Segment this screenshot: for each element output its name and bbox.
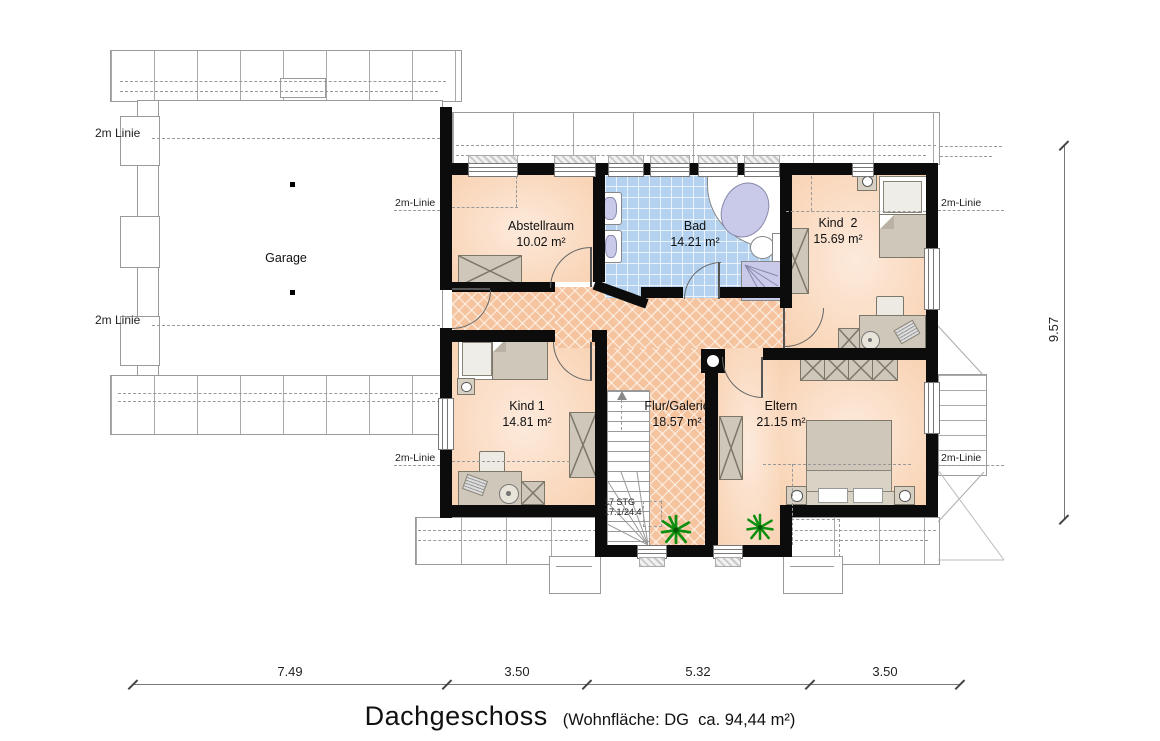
room-label-flur: Flur/Galerie18.57 m² <box>644 398 709 431</box>
plant-icon <box>745 513 775 540</box>
guide-label-house-right-bottom: 2m-Linie <box>941 452 981 464</box>
roof-dashed-line <box>418 540 588 541</box>
room-name: Eltern <box>765 399 798 413</box>
guide-label-garage-bottom: 2m Linie <box>95 313 140 327</box>
roof-dashed-line <box>118 393 448 394</box>
2m-line <box>938 465 1004 466</box>
wall <box>763 348 938 360</box>
guide-text: 2m Linie <box>95 126 140 140</box>
nightstand <box>894 486 915 505</box>
wall <box>641 287 683 298</box>
2m-line <box>811 176 812 211</box>
dimension-value: 3.50 <box>872 664 897 679</box>
room-label-abstellraum: Abstellraum10.02 m² <box>508 218 574 251</box>
room-area: 15.69 m² <box>813 232 862 246</box>
guide-text: 2m-Linie <box>941 452 981 464</box>
dimension-value-right: 9.57 <box>1046 317 1061 342</box>
wall <box>440 330 555 342</box>
garage-pillar <box>120 216 160 268</box>
wall <box>440 163 468 175</box>
guide-text: 2m-Linie <box>941 197 981 209</box>
room-area: 21.15 m² <box>756 415 805 429</box>
guide-text: 2m Linie <box>95 313 140 327</box>
wall <box>780 175 792 308</box>
blanket-fold <box>880 215 894 229</box>
window <box>744 163 780 177</box>
room-area: 14.21 m² <box>670 235 719 249</box>
roof-dashed-line <box>940 146 1002 147</box>
2m-line <box>152 138 440 139</box>
stair-ratio: 17.1/24.4 <box>604 507 642 517</box>
room-name: Kind 2 <box>819 216 858 230</box>
guide-label-house-right-top: 2m-Linie <box>941 197 981 209</box>
x-cross <box>522 482 544 504</box>
room-name: Bad <box>684 219 706 233</box>
wall <box>720 287 782 298</box>
nightstand <box>786 486 807 505</box>
floor-plan: Garage Abstellraum10.02 m² Bad14.21 m² K… <box>0 0 1160 741</box>
dim-text: 5.32 <box>685 664 710 679</box>
window <box>924 248 940 310</box>
desk-chair <box>479 451 505 473</box>
window <box>650 163 690 177</box>
plant-icon <box>659 514 693 544</box>
bed-pillow <box>853 488 883 503</box>
stair-direction-arrow <box>617 391 627 400</box>
window <box>554 163 596 177</box>
drawing-title-row: Dachgeschoss (Wohnfläche: DG ca. 94,44 m… <box>0 701 1160 732</box>
window-sill <box>715 557 741 567</box>
dimension-value: 7.49 <box>277 664 302 679</box>
room-area: 14.81 m² <box>502 415 551 429</box>
window <box>698 163 738 177</box>
wall <box>593 175 605 282</box>
garage-roof-band-bottom <box>110 375 457 435</box>
bed-pillow <box>818 488 848 503</box>
stair-walk-line <box>621 400 622 430</box>
guide-label-house-left-top: 2m-Linie <box>395 197 435 209</box>
2m-line <box>792 464 793 545</box>
garage-interior <box>137 100 443 378</box>
dimension-value: 5.32 <box>685 664 710 679</box>
dim-text: 3.50 <box>504 664 529 679</box>
garage-dot <box>290 182 295 187</box>
dimension-line-right <box>1064 145 1065 520</box>
dormer-dashed <box>786 519 840 557</box>
wall <box>516 163 554 175</box>
guide-label-garage-top: 2m Linie <box>95 126 140 140</box>
garage-pillar <box>120 116 160 166</box>
bed-pillow <box>462 342 492 376</box>
nightstand <box>457 378 475 395</box>
drawing-subtitle: (Wohnfläche: DG ca. 94,44 m²) <box>563 711 796 730</box>
drawing-title: Dachgeschoss <box>365 701 548 732</box>
window <box>852 163 874 177</box>
dim-text: 9.57 <box>1046 317 1061 342</box>
roof-dashed-line <box>418 530 596 531</box>
wall <box>778 163 852 175</box>
stair-steps: 17 STG <box>604 497 635 507</box>
roof-dashed-line <box>120 91 438 92</box>
wall <box>926 163 938 248</box>
2m-line <box>763 464 911 465</box>
room-label-eltern: Eltern21.15 m² <box>756 398 805 431</box>
dim-text: 3.50 <box>872 664 897 679</box>
2m-line <box>786 211 926 212</box>
2m-line <box>394 465 440 466</box>
room-label-bad: Bad14.21 m² <box>670 218 719 251</box>
stair-label: 17 STG17.1/24.4 <box>604 497 642 518</box>
wall <box>592 330 607 342</box>
window-sill <box>639 557 665 567</box>
dimension-value: 3.50 <box>504 664 529 679</box>
2m-line <box>938 210 1004 211</box>
dormer-bottom-left <box>549 556 601 594</box>
room-name: Abstellraum <box>508 219 574 233</box>
wall <box>926 308 938 382</box>
x-cross <box>720 417 742 479</box>
stool <box>499 484 519 504</box>
wardrobe <box>569 412 597 478</box>
wall <box>440 505 600 517</box>
roof-dashed-line <box>118 401 440 402</box>
wall <box>595 545 637 557</box>
window <box>438 398 454 450</box>
wall <box>780 505 938 517</box>
roof-dashed-line <box>456 145 936 146</box>
wardrobe <box>719 416 743 480</box>
window <box>608 163 644 177</box>
2m-line <box>394 210 440 211</box>
window <box>924 382 940 434</box>
garage-dot <box>290 290 295 295</box>
guide-text: 2m-Linie <box>395 197 435 209</box>
room-label-garage: Garage <box>265 250 307 266</box>
dormer-line <box>790 566 834 567</box>
dim-text: 7.49 <box>277 664 302 679</box>
bed-pillow <box>883 181 922 213</box>
room-label-kind2: Kind 215.69 m² <box>813 215 862 248</box>
room-area: 18.57 m² <box>652 415 701 429</box>
dormer-line <box>556 566 592 567</box>
wall <box>594 163 608 175</box>
room-name: Flur/Galerie <box>644 399 709 413</box>
corner-roof-lines <box>938 468 1008 564</box>
2m-line <box>452 207 518 208</box>
roof-dashed-line <box>456 155 926 156</box>
dimension-line-bottom <box>133 684 960 685</box>
room-name: Kind 1 <box>509 399 544 413</box>
2m-line <box>516 176 517 207</box>
roof-dashed-line <box>940 156 992 157</box>
2m-line <box>452 461 570 462</box>
cabinet <box>521 481 545 505</box>
roof-dashed-line <box>120 81 446 82</box>
room-area: 10.02 m² <box>516 235 565 249</box>
x-cross <box>570 413 596 477</box>
wall <box>440 107 452 290</box>
house-roof-band-top <box>452 112 940 165</box>
room-label-kind1: Kind 114.81 m² <box>502 398 551 431</box>
guide-text: 2m-Linie <box>395 452 435 464</box>
guide-label-house-left-bottom: 2m-Linie <box>395 452 435 464</box>
window <box>468 163 518 177</box>
wall <box>595 330 607 557</box>
dormer-bottom-right <box>783 556 843 594</box>
room-name: Garage <box>265 251 307 265</box>
2m-line <box>152 325 440 326</box>
